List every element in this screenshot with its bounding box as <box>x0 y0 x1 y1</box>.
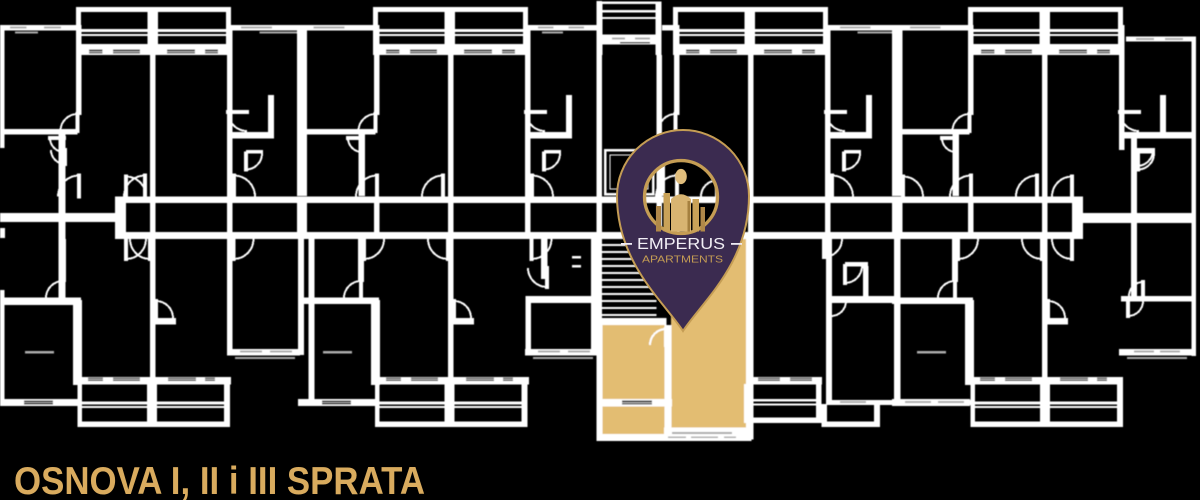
svg-text:EMPERUS: EMPERUS <box>637 236 725 253</box>
svg-text:OSNOVA I, II i III SPRATA: OSNOVA I, II i III SPRATA <box>14 460 425 500</box>
svg-text:APARTMENTS: APARTMENTS <box>642 255 723 266</box>
